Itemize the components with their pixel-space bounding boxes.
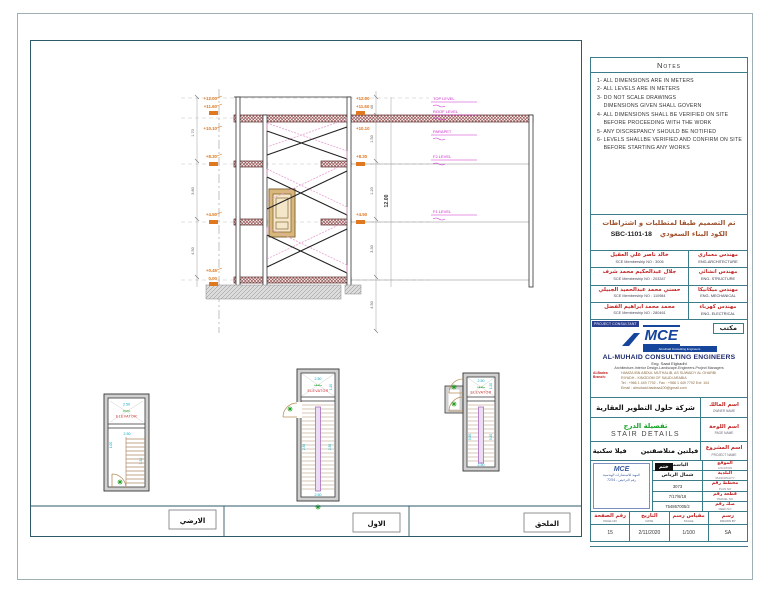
- design-code-box: تم التصميم طبقا لمتطلبات و اشتراطات SBC-…: [590, 214, 748, 251]
- elevator-label-ar: مصعد: [314, 383, 322, 387]
- dim-text: 3.30: [370, 245, 374, 252]
- note-line: 1- ALL DIMENSIONS ARE IN METERS: [597, 77, 743, 85]
- engineer-role-ar: مهندس انشائي: [689, 269, 747, 277]
- level-value: +0.45: [206, 268, 218, 273]
- note-line: 4- ALL DIMENSIONS SHALL BE VERIFIED ON S…: [597, 111, 743, 119]
- engineer-name: جلال عبدالحكيم محمد شرف: [591, 269, 688, 277]
- engineer-name: حسني محمد عبدالحميد الجبيلي: [591, 287, 688, 295]
- scale-label: مقياس رسم: [670, 512, 708, 519]
- drawn-by-cell: رسم DRAWN BY SA: [708, 512, 747, 541]
- mce-logo-subtext: Almuhaid Consulting Engineers: [643, 346, 717, 352]
- elevator-label-ar: مصعد: [122, 409, 130, 413]
- owner-row: شركة حلول التطوير العقارية اسم المالكOWN…: [590, 397, 748, 418]
- level-value: +12.00: [356, 96, 370, 101]
- engineer-row: جلال عبدالحكيم محمد شرفSCE Membership NO…: [591, 268, 747, 285]
- dim-text: 2.50: [315, 377, 322, 381]
- plan-annex: 2.50 مصعد ELEVATOR 1.20 5.20 5.20 2.50: [445, 373, 499, 471]
- plan-label-first: الاول: [367, 520, 385, 528]
- page-label-en: PAGE NAME: [715, 431, 734, 435]
- level-value: +12.00: [203, 96, 217, 101]
- page-label-ar: اسم اللوحة: [709, 424, 739, 431]
- office-label: مكتب: [713, 323, 744, 334]
- level-value: +10.10: [356, 126, 370, 131]
- parcel-no-label-en: PARCEL NO: [717, 497, 733, 501]
- engineer-membership: SCE Membership NO : 110984: [591, 294, 688, 298]
- dim-text: 2.50: [124, 432, 131, 436]
- dim-text: 40: [370, 105, 374, 109]
- level-tag: F1 LEVEL: [433, 209, 452, 214]
- level-value: +11.60: [204, 104, 218, 109]
- level-tag: ROOF LEVEL: [433, 109, 459, 114]
- level-tag: TOP LEVEL: [433, 96, 455, 101]
- design-code-line1: تم التصميم طبقا لمتطلبات و اشتراطات: [591, 219, 747, 227]
- stamp-logo-text: MCE: [594, 466, 649, 473]
- plan-label-annex: الملحق: [535, 520, 559, 528]
- date-label: التاريخ: [630, 512, 668, 519]
- engineer-row: خالد ناصر علي العقيلSCE Membership NO : …: [591, 251, 747, 268]
- scale-value: 1/100: [670, 524, 708, 541]
- engineer-role-ar: مهندس معماري: [689, 252, 747, 260]
- dim-text: 2.50: [478, 379, 485, 383]
- stair-stringer: [479, 407, 484, 463]
- branch-label: Al-Badea Branch:: [593, 371, 621, 390]
- project-row: فيلتين متلاصقتين فيلا سكنية اسم المشروعP…: [590, 441, 748, 461]
- note-line: 6- LEVELS SHALLBE VERIFIED AND CONFIRM O…: [597, 136, 743, 144]
- level-value: +4.50: [206, 212, 218, 217]
- engineer-role-en: ENG-ARCHITECTURE: [689, 260, 747, 264]
- date-value: 2/11/2020: [630, 524, 668, 541]
- dim-text: 1.20: [329, 384, 333, 390]
- page-name-ar: تفصيلة الدرج: [624, 422, 668, 430]
- dim-text: 2.30: [328, 444, 332, 450]
- scale-cell: مقياس رسم SCALE 1/100: [669, 512, 708, 541]
- engineer-role-ar: مهندس كهرباء: [689, 304, 747, 312]
- project-name-part2: فيلتين متلاصقتين: [641, 447, 699, 455]
- section-view: +12.00 +11.60 +10.10 +8.30 +4.50 +0.45 0…: [181, 89, 533, 333]
- engineer-role-en: ENG- MECHANICAL: [689, 294, 747, 298]
- plan-ground: 2.50 مصعد ELEVATOR 2.50 3.30 1.00: [104, 394, 149, 491]
- notes-title: Notes: [591, 58, 747, 73]
- date-cell: التاريخ DATE 2/11/2020: [629, 512, 668, 541]
- project-label-ar: اسم المشروع: [706, 445, 743, 452]
- engineer-role-en: ENG- STRUCTURE: [689, 277, 747, 281]
- seal-chip: ختم: [655, 463, 673, 471]
- dim-text: 2.50: [478, 463, 485, 467]
- note-line: BEFORE PROCEEDING WITH THE WORK: [597, 119, 743, 127]
- note-line: 5- ANY DISCREPANCY SHOULD BE NOTIFIED: [597, 128, 743, 136]
- plan-no-label-en: PLAN NO: [719, 487, 731, 491]
- level-tag: F2 LEVEL: [433, 154, 452, 159]
- owner-label-ar: اسم المالك: [709, 402, 739, 409]
- ground-hatch: [206, 285, 361, 299]
- engineer-membership: SCE Membership NO : 3006: [591, 260, 688, 264]
- dim-text: 2.50: [123, 403, 130, 407]
- door-opening: [294, 402, 302, 418]
- left-dim-chain: 1.70 3.80 4.50: [191, 95, 199, 287]
- elevator-label: ELEVATOR: [116, 415, 137, 419]
- elevator-label: ELEVATOR: [308, 389, 329, 393]
- stair-direction-symbol: [315, 504, 320, 509]
- project-name-part1: فيلا سكنية: [593, 447, 627, 455]
- dim-text: 1.70: [191, 129, 195, 136]
- stamp-line2: رقم الترخيص - 7254: [594, 478, 649, 483]
- details-labels: الموقعLOCATION البلديةMUNICIPALITY مخطط …: [702, 461, 747, 511]
- note-line: BEFORE STARTING ANY WORKS: [597, 144, 743, 152]
- sbc-code: SBC-1101-18: [611, 231, 652, 238]
- mce-logo-swoosh-icon: [622, 333, 640, 346]
- page-no-cell: رقم الصفحة PAGE NO 15: [591, 512, 629, 541]
- drawn-by-value: SA: [709, 524, 747, 541]
- consultant-box: PROJECT CONSULTANT مكتب MCE Almuhaid Con…: [590, 319, 748, 398]
- municipality-value: شمال الرياض: [661, 473, 693, 478]
- location-label-en: LOCATION: [718, 466, 732, 470]
- engineer-name: خالد ناصر علي العقيل: [591, 252, 688, 260]
- dim-text: 2.50: [315, 493, 322, 497]
- email-line: Email : almuhaid.badeaa100@gmail.com: [621, 386, 745, 391]
- right-dim-chain: 40 1.50 1.20 3.30 4.50 12.00: [370, 91, 391, 333]
- note-line: 3- DO NOT SCALE DRAWINGS: [597, 94, 743, 102]
- label-strip: الارضي الاول الملحق: [31, 506, 581, 536]
- engineer-role-ar: مهندس ميكانيكا: [689, 287, 747, 295]
- level-value: +8.30: [356, 154, 368, 159]
- design-code-line2: الكود البناء السعودي: [660, 230, 727, 238]
- dim-text: 4.50: [370, 301, 374, 308]
- page-name-row: تفصيلة الدرج STAIR DETAILS اسم اللوحةPAG…: [590, 417, 748, 442]
- level-value: +11.60: [356, 104, 370, 109]
- page-no-value: 15: [591, 524, 629, 541]
- note-line: DIMENSIONS GIVEN SHALL GOVERN: [597, 102, 743, 110]
- elevator-label-ar: مصعد: [477, 385, 485, 389]
- engineer-row: حسني محمد عبدالحميد الجبيليSCE Membershi…: [591, 286, 747, 303]
- engineer-membership: SCE Membership NO : 203347: [591, 277, 688, 281]
- owner-name-value: شركة حلول التطوير العقارية: [596, 404, 695, 412]
- engineers-table: خالد ناصر علي العقيلSCE Membership NO : …: [590, 250, 748, 320]
- engineer-membership: SCE Membership NO : 280461: [591, 311, 688, 315]
- level-name-tags: TOP LEVEL ROOF LEVEL PARAPET F2 LEVEL F1…: [431, 96, 477, 220]
- dim-text: 5.20: [468, 434, 472, 440]
- footer-row: رقم الصفحة PAGE NO 15 التاريخ DATE 2/11/…: [590, 511, 748, 542]
- dim-text: 1.50: [370, 135, 374, 142]
- elevator-label: ELEVATOR: [471, 391, 492, 395]
- drawing-frame: +12.00 +11.60 +10.10 +8.30 +4.50 +0.45 0…: [30, 40, 582, 537]
- engineer-role-en: ENG- ELECTRICAL: [689, 312, 747, 316]
- engineer-name: محمد محمد ابراهيم الفضل: [591, 304, 688, 312]
- plan-first: 2.50 مصعد ELEVATOR 1.20 2.30 2.30 2.50: [283, 369, 339, 510]
- project-label-en: PROJECT NAME: [712, 453, 737, 457]
- plan-no-value: 3073: [673, 484, 682, 489]
- deed-no-value: 754867005/2: [665, 504, 689, 509]
- dim-text: 1.20: [489, 383, 493, 389]
- dim-text: 4.50: [191, 247, 195, 254]
- project-consultant-chip: PROJECT CONSULTANT: [592, 321, 639, 327]
- stair-direction-symbol: [287, 406, 292, 411]
- level-value: 0.00: [208, 276, 217, 281]
- dim-text: 3.80: [191, 187, 195, 194]
- mce-logo-text: MCE: [643, 325, 680, 346]
- consultant-stamp: MCE المهيد للاستشارات الهندسية رقم الترخ…: [591, 461, 653, 511]
- company-name: AL-MUHAID CONSULTING ENGINEERS: [591, 354, 747, 361]
- parcel-no-value: 7/17/8/18: [669, 494, 686, 499]
- level-value: +10.10: [203, 126, 217, 131]
- level-tag: PARAPET: [433, 129, 452, 134]
- stair-stringer: [316, 407, 321, 491]
- dim-text: 1.20: [370, 187, 374, 194]
- municipality-label-en: MUNICIPALITY: [715, 476, 734, 480]
- details-block: MCE المهيد للاستشارات الهندسية رقم الترخ…: [590, 460, 748, 512]
- dim-text: 5.20: [489, 434, 493, 440]
- dim-text: 2.30: [302, 444, 306, 450]
- owner-label-en: OWNER NAME: [713, 409, 735, 413]
- level-value: +4.50: [356, 212, 368, 217]
- company-tagline: Architecture-Interior Design-Landscape-E…: [591, 366, 747, 370]
- plan-label-ground: الارضي: [180, 517, 206, 525]
- engineer-row: محمد محمد ابراهيم الفضلSCE Membership NO…: [591, 303, 747, 319]
- notes-box: Notes 1- ALL DIMENSIONS ARE IN METERS 2-…: [590, 57, 748, 215]
- page-name-en: STAIR DETAILS: [611, 431, 680, 438]
- drawn-by-label: رسم: [709, 512, 747, 519]
- page-no-label: رقم الصفحة: [591, 512, 629, 519]
- overall-height-dim: 12.00: [384, 194, 390, 207]
- note-line: 2- ALL LEVELS ARE IN METERS: [597, 85, 743, 93]
- dim-text: 1.00: [109, 442, 113, 448]
- level-value: +8.30: [206, 154, 218, 159]
- stair-drawing-canvas: +12.00 +11.60 +10.10 +8.30 +4.50 +0.45 0…: [31, 41, 581, 536]
- title-block-panel: Notes 1- ALL DIMENSIONS ARE IN METERS 2-…: [590, 57, 748, 547]
